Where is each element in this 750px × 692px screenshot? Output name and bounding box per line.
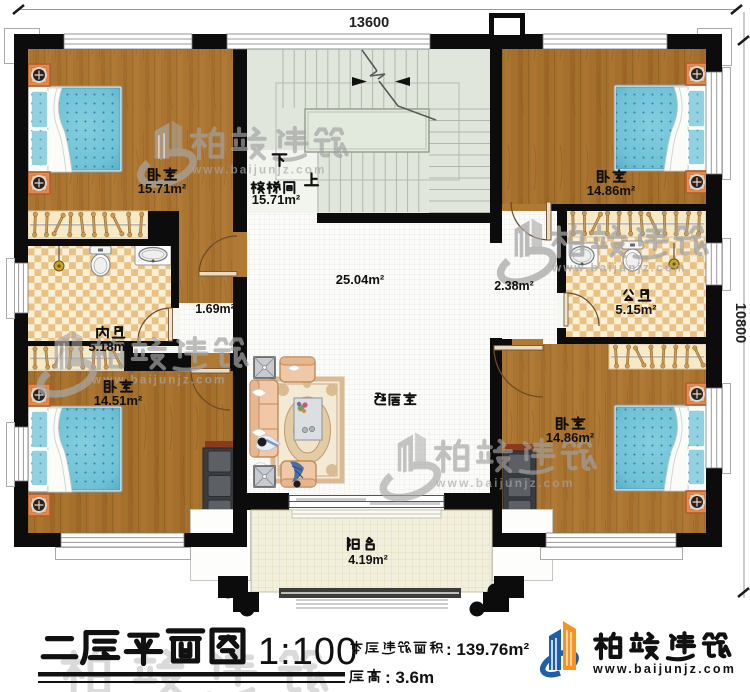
svg-text:5.18m²: 5.18m² (88, 339, 130, 354)
svg-text:10800: 10800 (732, 303, 748, 343)
svg-text:4.19m²: 4.19m² (348, 553, 388, 567)
svg-text:: 139.76m²: : 139.76m² (446, 640, 529, 659)
svg-text:2.38m²: 2.38m² (494, 279, 534, 293)
svg-text:: 3.6m: : 3.6m (385, 668, 434, 687)
svg-text:www.baijunjz.com: www.baijunjz.com (91, 374, 226, 387)
svg-text:15.71m²: 15.71m² (138, 181, 187, 196)
svg-text:www.baijunjz.com: www.baijunjz.com (191, 164, 326, 177)
svg-text:www.baijunjz.com: www.baijunjz.com (592, 662, 736, 676)
svg-text:14.86m²: 14.86m² (546, 430, 595, 445)
svg-text:15.71m²: 15.71m² (252, 192, 301, 207)
svg-text:13600: 13600 (349, 15, 389, 31)
svg-text:1.69m²: 1.69m² (195, 302, 235, 316)
svg-text:1:100: 1:100 (258, 631, 358, 673)
svg-text:www.baijunjz.com: www.baijunjz.com (551, 262, 686, 275)
svg-text:14.51m²: 14.51m² (94, 393, 143, 408)
svg-text:5.15m²: 5.15m² (615, 302, 657, 317)
svg-text:25.04m²: 25.04m² (336, 272, 385, 287)
svg-text:14.86m²: 14.86m² (587, 183, 636, 198)
svg-text:www.baijunjz.com: www.baijunjz.com (435, 476, 575, 490)
